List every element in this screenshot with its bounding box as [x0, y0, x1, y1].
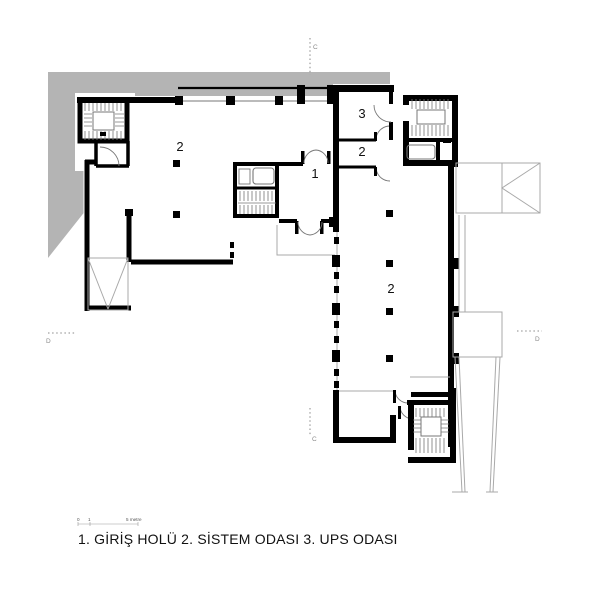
stair-treads: [413, 408, 449, 453]
west-wing: [77, 85, 336, 311]
room-label-system-east: 2: [387, 281, 394, 296]
room-labels: 2 1 3 2 2: [176, 106, 394, 296]
section-marker-d-right: D: [535, 336, 540, 343]
entrance-hall: [277, 150, 337, 255]
section-marker-c-top: C: [313, 44, 318, 51]
northeast-stair-block: [400, 93, 460, 167]
entrance-doors-north: [301, 150, 331, 164]
room-label-system-west: 2: [176, 139, 183, 154]
ramp-landing: [453, 312, 502, 357]
plan-caption: 1. GİRİŞ HOLÜ 2. SİSTEM ODASI 3. UPS ODA…: [78, 530, 398, 547]
entry-landing: [277, 225, 335, 255]
room-label-entrance: 1: [311, 166, 318, 181]
northwest-stair-block: [77, 97, 130, 144]
walkway-lines: [459, 215, 465, 312]
east-wing: [332, 85, 460, 463]
room-label-ups: 3: [358, 106, 365, 121]
east-externals: [452, 163, 540, 492]
scale-five-metre: 5 metre: [126, 517, 142, 522]
scale-line: [78, 522, 138, 526]
section-marker-c-bottom: C: [312, 436, 317, 443]
floor-plan-drawing: 2 1 3 2 2 C C D D 0 1 5 metre 1. GİRİŞ H…: [0, 0, 600, 610]
entrance-doors-south: [295, 221, 324, 235]
ramp-east: [452, 357, 502, 492]
floor-plan-sheet: 2 1 3 2 2 C C D D 0 1 5 metre 1. GİRİŞ H…: [0, 0, 600, 610]
canopy-east: [456, 163, 540, 213]
scale-bar: 0 1 5 metre: [77, 517, 142, 526]
scale-zero: 0: [77, 517, 80, 522]
curtain-wall-dashed: [332, 232, 340, 392]
scale-one: 1: [88, 517, 91, 522]
section-marker-d-left: D: [46, 338, 51, 345]
core-block: [233, 162, 279, 218]
room-label-system-upper: 2: [358, 144, 365, 159]
south-service-room: [333, 390, 413, 443]
